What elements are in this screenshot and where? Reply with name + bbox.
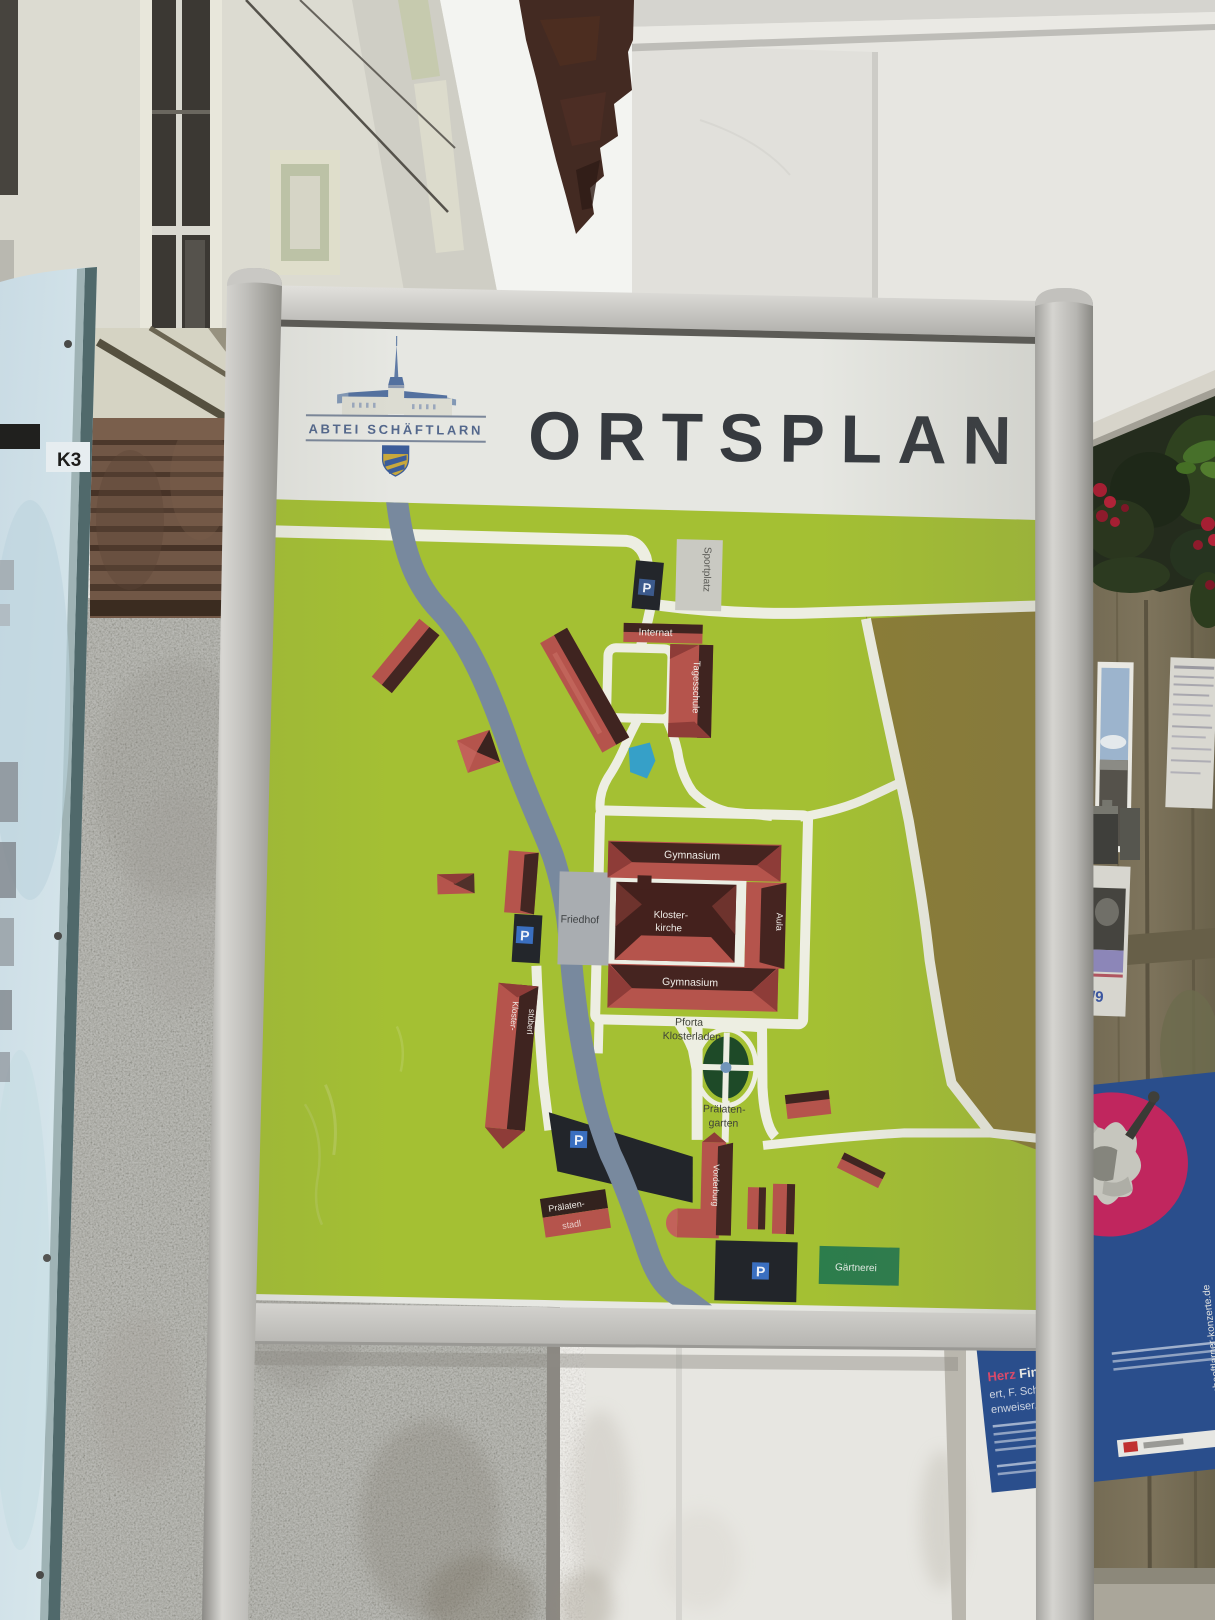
svg-text:K3: K3 [57,450,81,471]
